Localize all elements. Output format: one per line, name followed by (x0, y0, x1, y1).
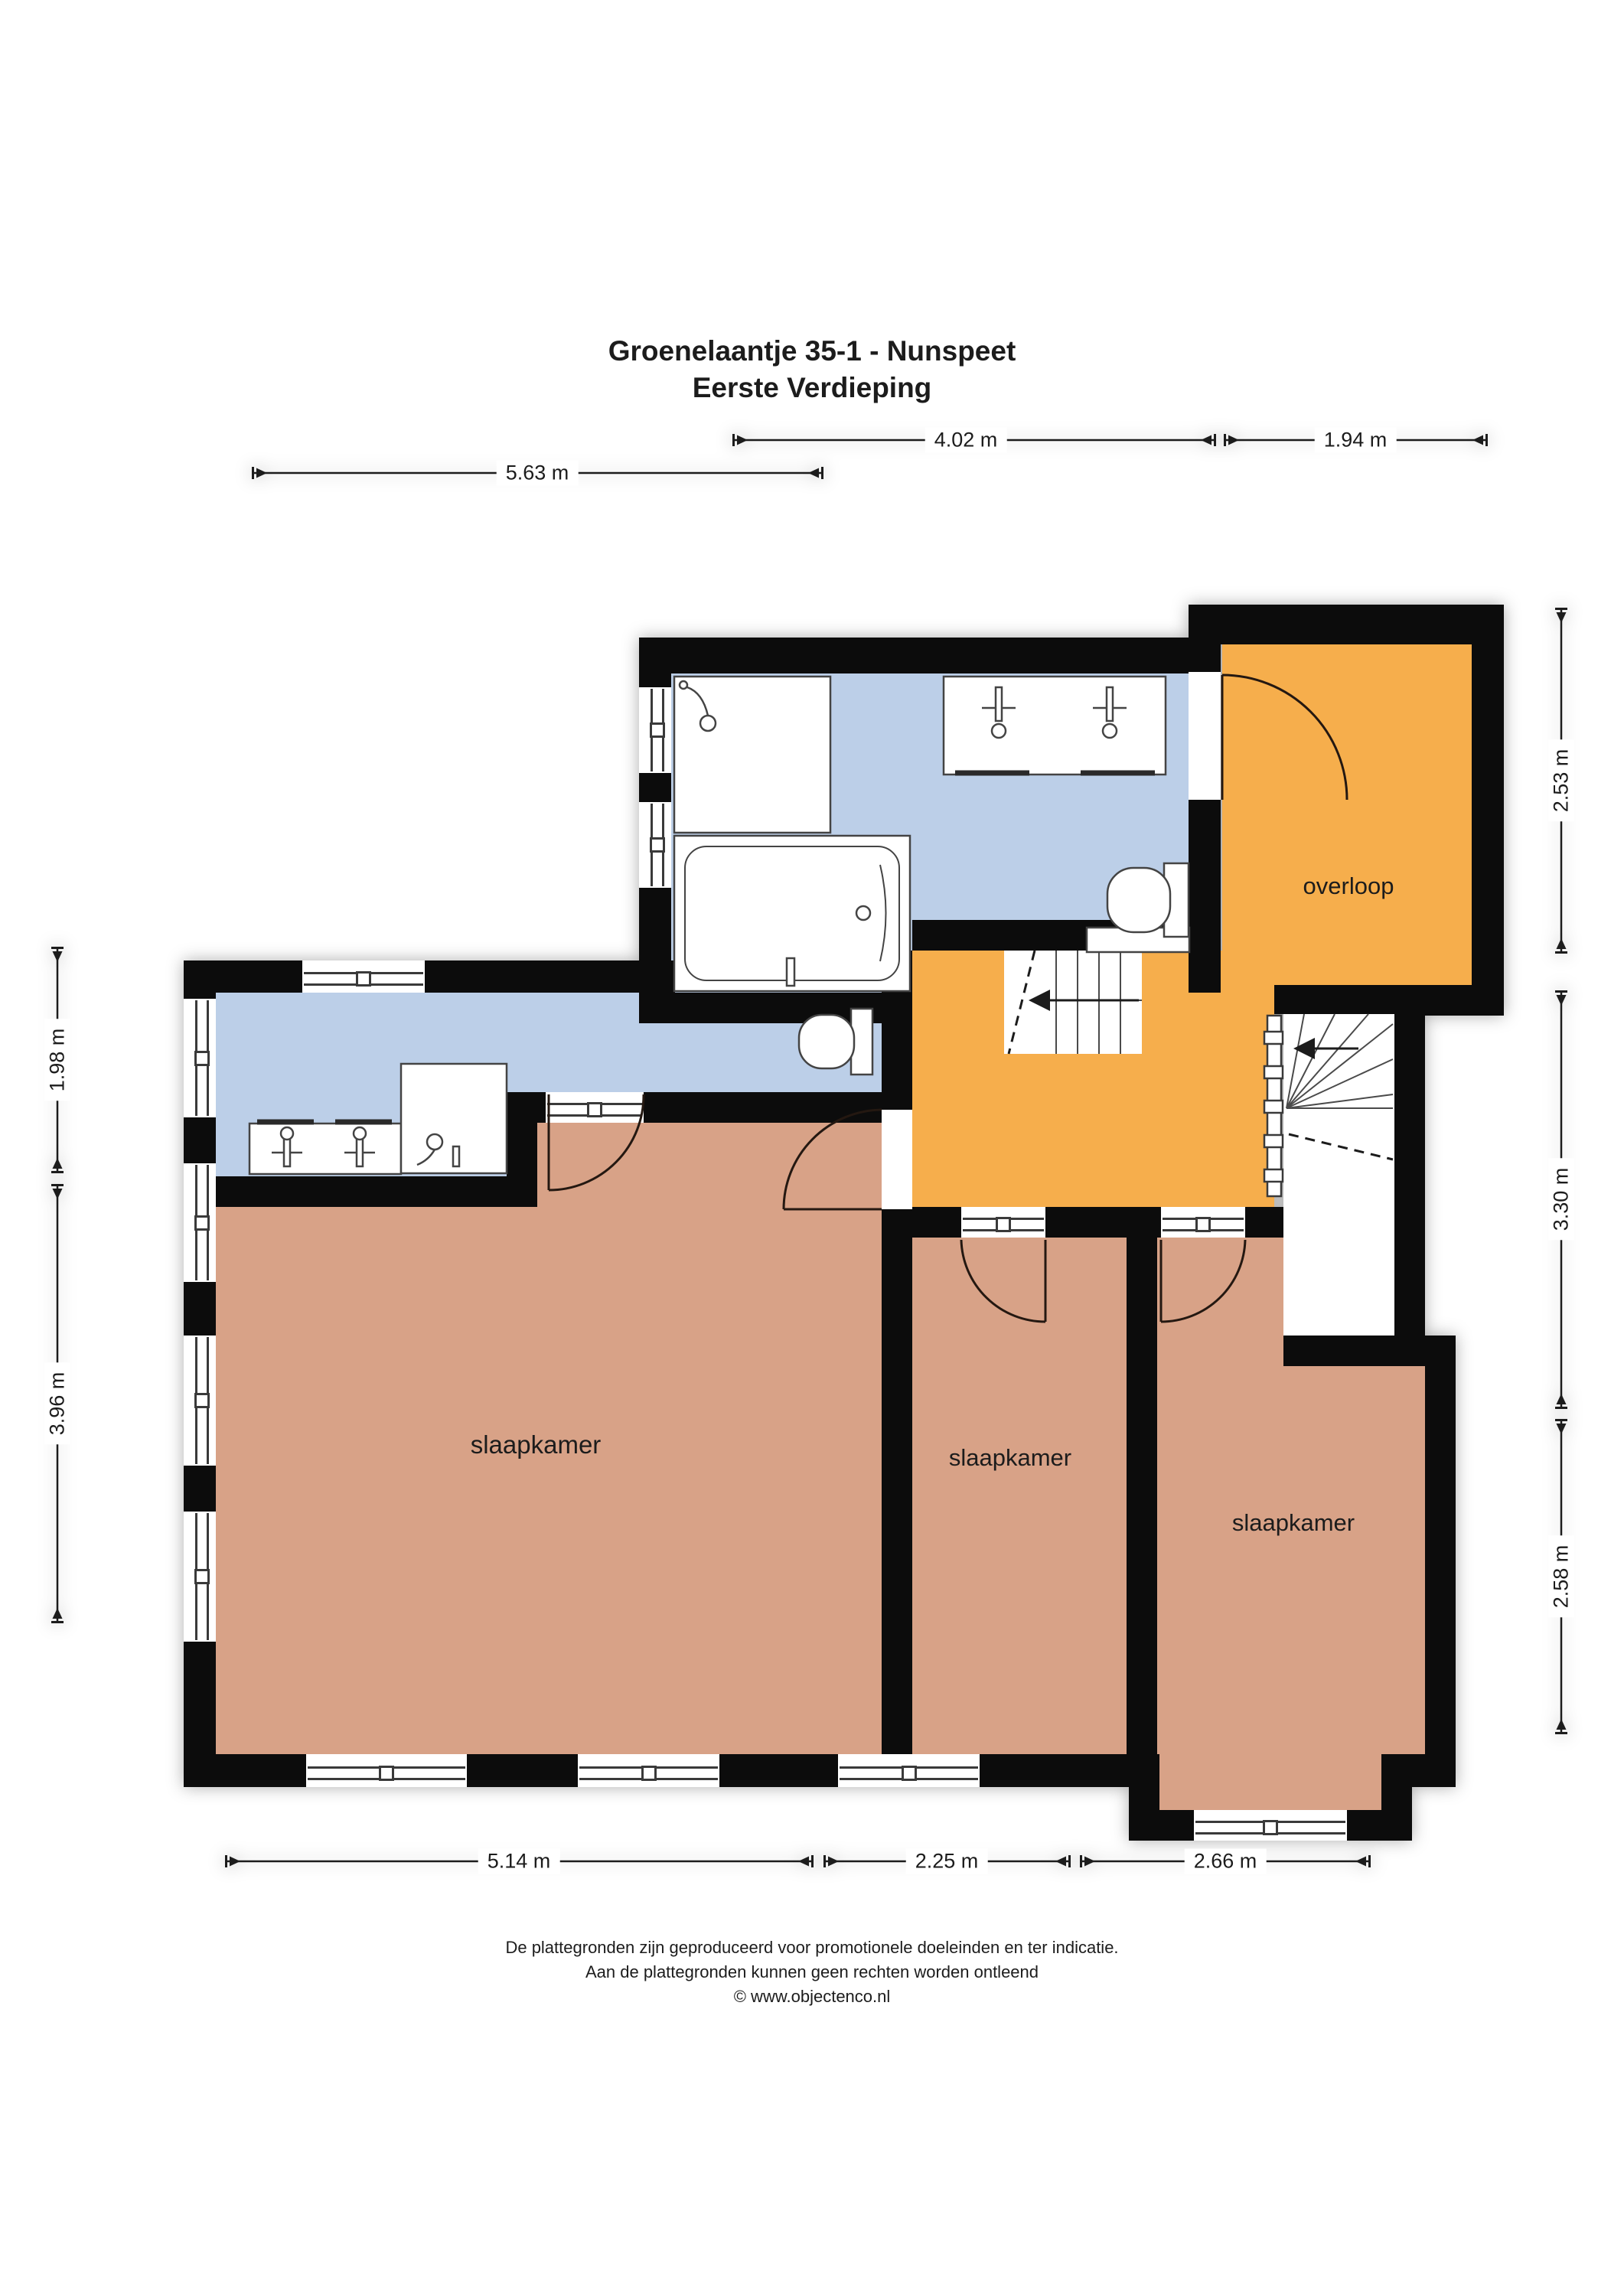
room-bathroom-top (671, 920, 912, 993)
room-bedroom-right-bay (1159, 1754, 1381, 1810)
room-bathroom-left (216, 993, 507, 1176)
window (302, 960, 425, 993)
dimension-top-overloop: 1.94 m (1315, 428, 1397, 453)
door-sill-bedroom-right (1161, 1207, 1245, 1238)
footer-copyright: © www.objectenco.nl (734, 1987, 891, 2007)
dimension-bottom-right: 2.66 m (1185, 1849, 1267, 1874)
window (838, 1754, 980, 1787)
room-bedroom-left (216, 1207, 882, 1754)
stairwell-right (1283, 1014, 1394, 1336)
wall (1381, 1754, 1412, 1841)
room-label-bedroom-right: slaapkamer (1232, 1509, 1355, 1537)
wall (1394, 985, 1504, 1016)
floorplan-page: { "title": { "line1": "Groenelaantje 35-… (0, 0, 1624, 2296)
room-bedroom-left (537, 1123, 882, 1207)
wall (1189, 800, 1221, 993)
wall (639, 638, 1221, 673)
dimension-right-middle: 3.30 m (1549, 1159, 1574, 1241)
footer-disclaimer-line2: Aan de plattegronden kunnen geen rechten… (585, 1962, 1039, 1982)
wall (216, 1176, 537, 1207)
wall (1274, 985, 1394, 1014)
dimension-left-bottom: 3.96 m (45, 1363, 70, 1445)
window (184, 999, 216, 1117)
wall (1283, 1336, 1456, 1366)
room-bathroom-top (671, 673, 1190, 920)
window (306, 1754, 467, 1787)
wall (1189, 605, 1504, 644)
dimension-right-bottom: 2.58 m (1549, 1536, 1574, 1618)
dimension-bottom-left: 5.14 m (478, 1849, 560, 1874)
door-sill-bedroom-middle (961, 1207, 1045, 1238)
room-bedroom-middle (912, 1238, 1127, 1754)
wall (912, 920, 1221, 951)
window (639, 687, 671, 773)
stairwell-central (1004, 951, 1142, 1054)
dimension-right-top: 2.53 m (1549, 740, 1574, 822)
window (184, 1163, 216, 1282)
wall (1425, 1336, 1456, 1787)
wall (1127, 1238, 1157, 1754)
room-label-bedroom-middle: slaapkamer (949, 1444, 1071, 1472)
window (184, 1336, 216, 1466)
dimension-top-left: 5.63 m (497, 461, 579, 486)
door-opening-overloop (1189, 672, 1221, 800)
wall (882, 1238, 912, 1754)
room-bedroom-right (1157, 1238, 1283, 1754)
window (184, 1512, 216, 1642)
footer-disclaimer-line1: De plattegronden zijn geproduceerd voor … (505, 1938, 1118, 1958)
wall (1394, 1016, 1425, 1336)
wall (184, 960, 675, 993)
room-overloop (1222, 644, 1472, 985)
door-sill-bedroom-left (546, 1092, 644, 1123)
room-bedroom-right (1283, 1366, 1425, 1754)
wall (1472, 605, 1504, 1016)
dimension-bottom-middle: 2.25 m (906, 1849, 988, 1874)
wall (639, 993, 912, 1023)
dimension-top-bathroom: 4.02 m (925, 428, 1007, 453)
door-opening-bedroom-left (882, 1110, 912, 1209)
wall (507, 1092, 537, 1207)
window (578, 1754, 719, 1787)
window (639, 802, 671, 888)
dimension-left-top: 1.98 m (45, 1019, 70, 1101)
room-label-overloop: overloop (1303, 872, 1394, 900)
room-label-bedroom-left: slaapkamer (471, 1430, 602, 1459)
window (1194, 1810, 1347, 1841)
